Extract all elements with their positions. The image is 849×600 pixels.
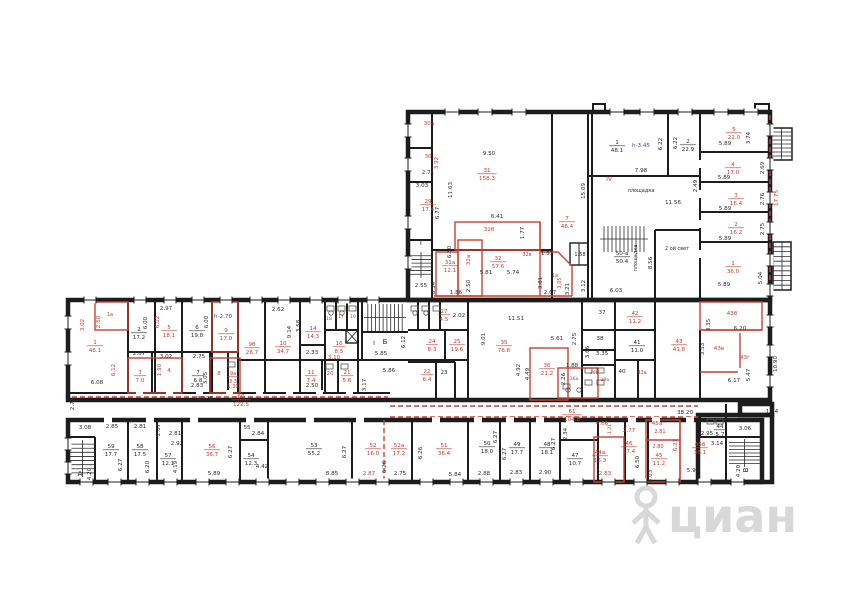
plan-label: 3.21 [565, 282, 571, 295]
svg-text:2.71: 2.71 [70, 397, 76, 410]
plan-label: 4.03 [648, 469, 654, 482]
plan-label: 3.74 [746, 131, 752, 144]
plan-label: 43г [740, 355, 750, 361]
svg-text:36.4: 36.4 [438, 451, 451, 457]
svg-text:3.53: 3.53 [700, 342, 706, 355]
svg-text:50: 50 [483, 441, 491, 447]
plan-label: 4.19 [173, 460, 179, 473]
svg-text:3.35: 3.35 [596, 351, 609, 357]
svg-text:6.00: 6.00 [143, 316, 149, 329]
svg-text:3.05: 3.05 [557, 277, 563, 288]
svg-text:41.8: 41.8 [673, 347, 686, 353]
plan-label: 136.0 [725, 261, 741, 275]
plan-label: 1а [107, 312, 113, 318]
window-mark [767, 315, 774, 327]
door-gap [536, 417, 544, 423]
plan-label: 4.42 [256, 464, 268, 470]
svg-text:11.51: 11.51 [508, 316, 524, 322]
window-mark [640, 109, 654, 116]
svg-text:3.14: 3.14 [711, 441, 724, 447]
door-gap [316, 390, 323, 396]
svg-text:2.95: 2.95 [701, 431, 714, 437]
svg-text:43в: 43в [714, 346, 724, 352]
window-mark [714, 109, 728, 116]
window-mark [84, 297, 96, 304]
svg-text:2.55: 2.55 [415, 283, 428, 289]
window-mark [367, 297, 379, 304]
plan-label: 2.75 [193, 354, 206, 360]
fixture-icon [341, 364, 348, 369]
svg-text:25: 25 [453, 339, 461, 345]
svg-text:6.27: 6.27 [342, 445, 348, 458]
window-mark [346, 479, 359, 486]
plan-label: 2.50 [306, 383, 319, 389]
svg-text:3: 3 [734, 193, 738, 199]
plan-label: 6.50 [447, 245, 453, 258]
svg-text:3.10: 3.10 [328, 355, 341, 361]
plan-label: 5136.4 [436, 443, 452, 457]
svg-text:6.20: 6.20 [145, 460, 151, 473]
plan-label: 1.30 [227, 384, 238, 390]
svg-text:2.26: 2.26 [561, 372, 567, 385]
window-mark [602, 479, 615, 486]
svg-text:3.05: 3.05 [203, 371, 209, 384]
plan-label: 6.27 [551, 437, 557, 450]
window-mark [108, 479, 121, 486]
svg-text:4.66: 4.66 [596, 421, 609, 427]
door-gap [246, 417, 254, 423]
svg-text:6.17: 6.17 [728, 378, 741, 384]
plan-label: 1.31 [541, 251, 554, 257]
plan-label: 3.35 [706, 318, 712, 331]
svg-text:20: 20 [326, 371, 334, 377]
plan-label: 2.97 [160, 306, 173, 312]
plan-label: 4.49 [525, 367, 531, 380]
plan-label: 5.81 [480, 270, 493, 276]
plan-label: 20 [326, 371, 334, 377]
door-gap [286, 390, 293, 396]
window-mark [338, 297, 350, 304]
plan-label: 1034.7 [275, 341, 291, 355]
svg-text:17.0: 17.0 [220, 336, 233, 342]
window-mark [226, 479, 239, 486]
plan-label: 31158.3 [477, 168, 496, 182]
plan-label: 5.89 [719, 206, 732, 212]
svg-text:17.75: 17.75 [774, 190, 780, 206]
svg-text:5.6: 5.6 [343, 378, 352, 384]
svg-text:10: 10 [279, 341, 287, 347]
svg-text:22: 22 [423, 369, 430, 375]
svg-text:5.89: 5.89 [719, 206, 732, 212]
svg-text:1: 1 [615, 140, 619, 146]
svg-text:2 ой свет: 2 ой свет [665, 245, 689, 252]
svg-text:1.88: 1.88 [566, 363, 579, 369]
svg-text:6.41: 6.41 [491, 214, 504, 220]
plan-label: 168.5 [333, 341, 345, 355]
svg-text:45: 45 [655, 453, 663, 459]
plan-label: 2.77 [623, 428, 636, 434]
plan-label: 522.0 [726, 127, 742, 141]
plan-label: 2.34 [563, 427, 569, 440]
svg-text:6.12: 6.12 [111, 364, 117, 376]
plan-label: 11.51 [508, 316, 524, 322]
plan-label: 6.21 [673, 438, 679, 451]
plan-label: 216.2 [728, 222, 744, 236]
plan-label: 6.27 [228, 445, 234, 458]
svg-text:46.1: 46.1 [89, 348, 102, 354]
plan-label: 4.66 [596, 421, 609, 427]
plan-label: 5.85 [375, 351, 388, 357]
window-mark [134, 297, 146, 304]
svg-text:16.0: 16.0 [367, 451, 380, 457]
plan-label: 3.35 [596, 351, 609, 357]
plan-label: 6.02 [155, 316, 161, 328]
svg-text:7: 7 [565, 216, 569, 222]
svg-text:55.2: 55.2 [308, 451, 320, 457]
svg-text:2.83: 2.83 [510, 470, 523, 476]
svg-text:50.4: 50.4 [616, 259, 629, 265]
plan-label: 2.07 [156, 423, 162, 436]
plan-label: 36а [570, 376, 579, 382]
svg-text:2.69: 2.69 [760, 161, 766, 174]
svg-text:2.87: 2.87 [363, 471, 376, 477]
window-mark [405, 124, 412, 137]
svg-text:2.84: 2.84 [252, 431, 265, 437]
plan-label: 2.92 [171, 441, 183, 447]
svg-text:11.0: 11.0 [631, 348, 644, 354]
plan-label: 6.22 [658, 138, 664, 150]
plan-label: 2.71 [422, 170, 435, 176]
svg-text:2.76: 2.76 [760, 192, 766, 205]
svg-text:14: 14 [309, 326, 317, 332]
door-gap [506, 417, 514, 423]
svg-text:49: 49 [513, 442, 521, 448]
plan-label: 3.53 [700, 342, 706, 355]
plan-label: 3.81 [538, 276, 544, 289]
plan-label: 4710.7 [567, 453, 583, 467]
plan-label: 518.1 [161, 325, 177, 339]
plan-label: 3621.2 [539, 363, 555, 377]
plan-label: 6.17 [728, 378, 741, 384]
svg-text:51: 51 [440, 443, 448, 449]
svg-text:2.50: 2.50 [466, 279, 472, 292]
plan-label: 619.8 [189, 325, 205, 339]
svg-text:30.26: 30.26 [197, 396, 213, 402]
window-mark [220, 297, 232, 304]
plan-label: 3.17 [362, 378, 368, 391]
plan-label: 9.14 [287, 325, 293, 338]
svg-text:8.56: 8.56 [648, 256, 654, 269]
plan-label: 2.02 [453, 313, 465, 319]
svg-text:4.20: 4.20 [87, 467, 93, 480]
svg-text:43: 43 [675, 339, 683, 345]
door-gap [306, 417, 314, 423]
plan-label: площадка [628, 188, 655, 194]
plan-label: 6.27 [502, 447, 508, 460]
svg-text:5.47: 5.47 [746, 368, 752, 381]
plan-label: 2.49 [693, 179, 699, 192]
plan-label: 2 ой свет [665, 245, 689, 252]
svg-text:17.7: 17.7 [105, 452, 118, 458]
plan-label: 2.67 [544, 290, 557, 296]
window-mark [540, 479, 553, 486]
svg-text:21: 21 [343, 370, 351, 376]
svg-text:10.90: 10.90 [773, 356, 779, 372]
svg-text:3.03: 3.03 [416, 183, 429, 189]
plan-label: 36б [590, 370, 599, 376]
plan-label: 2917.4 [420, 199, 436, 213]
plan-label: 5355.2 [306, 443, 322, 457]
plan-label: 7.98 [635, 168, 648, 174]
svg-text:9.14: 9.14 [287, 325, 293, 338]
window-mark [512, 109, 526, 116]
svg-text:34.7: 34.7 [277, 349, 290, 355]
door-gap [166, 390, 173, 396]
plan-label: 6.50 [635, 455, 641, 468]
svg-text:2.97: 2.97 [160, 306, 173, 312]
svg-text:6.26: 6.26 [382, 460, 388, 473]
svg-text:9.01: 9.01 [481, 332, 487, 345]
svg-text:6.21: 6.21 [673, 438, 679, 451]
svg-text:2.81: 2.81 [654, 429, 665, 435]
fixture-icon [329, 311, 333, 315]
plan-label: 146.1 [87, 340, 103, 354]
plan-label: 19 [350, 314, 356, 320]
plan-label: 3.05 [203, 371, 209, 384]
svg-text:1.54: 1.54 [766, 409, 779, 415]
window-mark [478, 109, 492, 116]
svg-text:3.92: 3.92 [434, 157, 440, 169]
plan-label: 5917.7 [103, 444, 119, 458]
fixture-icon [411, 306, 418, 311]
plan-label: 445.7 [714, 424, 726, 438]
plan-label: 3.10 [328, 355, 341, 361]
stair-hatch [600, 226, 648, 252]
plan-label: 31а12.1 [442, 260, 458, 274]
plan-label: 4.20 [87, 467, 93, 480]
plan-label: 5.89 [719, 236, 732, 242]
plan-label: 6.00 [204, 315, 210, 328]
svg-text:3.02: 3.02 [80, 319, 86, 331]
svg-text:6.26: 6.26 [418, 446, 424, 459]
fixture-icon [433, 306, 440, 311]
plan-label: 32б [484, 227, 495, 233]
fixture-icon [349, 306, 356, 311]
watermark-person-icon [633, 488, 659, 543]
plan-label: 2.75 [572, 332, 578, 345]
plan-label: 1.77 [520, 226, 526, 239]
svg-text:4.20: 4.20 [736, 464, 742, 477]
plan-label: 23 [440, 370, 448, 376]
svg-text:6.00: 6.00 [204, 315, 210, 328]
svg-text:3.35: 3.35 [706, 318, 712, 331]
svg-text:38: 38 [596, 336, 604, 342]
svg-text:17.4: 17.4 [422, 207, 435, 213]
window-mark [634, 479, 647, 486]
plan-label: 9б26.7 [244, 342, 260, 356]
svg-text:9б: 9б [248, 342, 256, 348]
plan-label: 4.92 [516, 364, 522, 376]
svg-text:16.4: 16.4 [730, 201, 743, 207]
door-gap [190, 417, 198, 423]
svg-text:2.07: 2.07 [156, 423, 162, 436]
stair-hatch [771, 128, 792, 160]
svg-text:46: 46 [625, 441, 633, 447]
window-mark [316, 479, 329, 486]
plan-label: 40 [618, 369, 626, 375]
plan-label: 50-а50.4 [614, 251, 630, 265]
svg-text:45б: 45б [695, 442, 706, 448]
svg-text:6.77: 6.77 [435, 206, 441, 219]
plan-label: 4511.2 [651, 453, 667, 467]
svg-text:35: 35 [500, 340, 508, 346]
svg-text:3.02: 3.02 [160, 354, 172, 360]
plan-label: 3.58 [296, 319, 302, 332]
plan-label: 43в [714, 346, 724, 352]
plan-label: 5.89 [719, 141, 732, 147]
window-mark [731, 479, 744, 486]
svg-text:6.50: 6.50 [635, 455, 641, 468]
svg-text:6.27: 6.27 [551, 437, 557, 450]
door-gap [697, 220, 703, 228]
plan-label: 5636.7 [204, 444, 220, 458]
svg-text:5.97: 5.97 [687, 468, 700, 474]
plan-label: 4 [167, 368, 171, 374]
plan-label: 3.03 [416, 183, 429, 189]
svg-text:59: 59 [107, 444, 115, 450]
fixture-icon [422, 306, 429, 311]
window-mark [65, 438, 72, 450]
plan-label: 43б [727, 311, 738, 317]
plan-label: 8.85 [326, 471, 339, 477]
plan-label: 6.27 [493, 430, 499, 443]
svg-text:4.03: 4.03 [648, 469, 654, 482]
svg-text:2.34: 2.34 [563, 427, 569, 440]
svg-text:3.81: 3.81 [538, 276, 544, 289]
svg-text:44а: 44а [595, 450, 606, 456]
svg-text:47: 47 [571, 453, 579, 459]
plan-label: 1.21 [607, 424, 613, 434]
plan-label: 2.87 [133, 351, 146, 357]
plan-label: 2.88 [478, 471, 491, 477]
plan-label: 2.76 [760, 192, 766, 205]
plan-label: 215.6 [341, 370, 353, 384]
svg-text:6.34: 6.34 [431, 281, 437, 294]
window-mark [767, 124, 774, 136]
plan-label: 2.71 [70, 397, 76, 410]
svg-text:36.1: 36.1 [694, 450, 707, 456]
svg-text:12.1: 12.1 [444, 268, 457, 274]
svg-text:5.89: 5.89 [718, 175, 731, 181]
fixture-icon [424, 311, 428, 315]
svg-text:2.92: 2.92 [171, 441, 183, 447]
svg-text:41: 41 [633, 340, 641, 346]
window-mark [196, 479, 209, 486]
plan-label: 3.06 [739, 426, 752, 432]
svg-text:29: 29 [424, 199, 432, 205]
svg-text:7.0: 7.0 [136, 378, 145, 384]
plan-label: 2.62 [272, 307, 284, 313]
svg-text:5.85: 5.85 [375, 351, 388, 357]
svg-text:40: 40 [618, 369, 626, 375]
plan-label: 5.84 [449, 472, 462, 478]
plan-label: 30а [424, 121, 435, 127]
svg-text:43г: 43г [740, 355, 750, 361]
svg-text:158.3: 158.3 [479, 176, 495, 182]
svg-text:4.5: 4.5 [440, 317, 449, 323]
svg-text:6.02: 6.02 [155, 316, 161, 328]
plan-label: 38 [596, 336, 604, 342]
door-gap [697, 160, 703, 168]
window-mark [164, 479, 177, 486]
plan-label: 15.09 [581, 183, 587, 199]
window-mark [256, 479, 269, 486]
plan-label: 248.3 [426, 339, 438, 353]
svg-text:60: 60 [237, 394, 245, 400]
svg-text:4: 4 [167, 368, 171, 374]
floor-plan-canvas: циан [0, 0, 849, 600]
svg-text:37: 37 [598, 310, 606, 316]
fixture-icon [327, 306, 334, 311]
plan-label: 5.89 [718, 175, 731, 181]
svg-text:30: 30 [424, 154, 432, 160]
plan-label: 6.03 [610, 288, 623, 294]
window-mark [136, 479, 149, 486]
window-mark [767, 254, 774, 266]
window-mark [767, 375, 774, 387]
svg-text:6.50: 6.50 [447, 245, 453, 258]
window-mark [570, 479, 583, 486]
svg-text:3.58: 3.58 [296, 319, 302, 332]
plan-label: 3576.8 [496, 340, 512, 354]
svg-text:104.8: 104.8 [564, 417, 580, 423]
svg-text:1.31: 1.31 [541, 251, 554, 257]
plan-label: 1.88 [566, 363, 579, 369]
svg-text:42: 42 [631, 311, 638, 317]
window-mark [767, 222, 774, 234]
window-mark [420, 479, 433, 486]
plan-label: 38.20 [677, 410, 693, 416]
window-mark [65, 316, 72, 329]
plan-label: 18 [326, 316, 332, 322]
svg-text:6.22: 6.22 [673, 137, 679, 149]
svg-text:5.86: 5.86 [383, 368, 396, 374]
plan-label: 2.81 [654, 429, 665, 435]
svg-text:5.84: 5.84 [449, 472, 462, 478]
plan-label: 6.00 [143, 316, 149, 329]
svg-text:2.77: 2.77 [623, 428, 636, 434]
svg-text:5: 5 [732, 127, 736, 133]
svg-text:57: 57 [164, 453, 172, 459]
svg-text:2.75: 2.75 [193, 354, 206, 360]
plan-label: 4211.2 [627, 311, 643, 325]
plan-label: 3.66 [585, 345, 591, 358]
plan-label: площадка [633, 245, 639, 272]
svg-text:9.50: 9.50 [483, 151, 496, 157]
svg-text:I: I [373, 340, 375, 347]
svg-text:22.9: 22.9 [682, 147, 695, 153]
plan-label: 6.41 [491, 214, 504, 220]
svg-text:36.7: 36.7 [206, 452, 219, 458]
plan-label: 6.12 [111, 364, 117, 376]
svg-text:2.88: 2.88 [478, 471, 491, 477]
svg-text:56: 56 [208, 444, 216, 450]
plan-label: 39а [601, 377, 610, 383]
door-gap [146, 417, 154, 423]
plan-label: 2.84 [252, 431, 265, 437]
plan-label: 2.75 [760, 222, 766, 235]
fixture-icon [326, 364, 333, 369]
